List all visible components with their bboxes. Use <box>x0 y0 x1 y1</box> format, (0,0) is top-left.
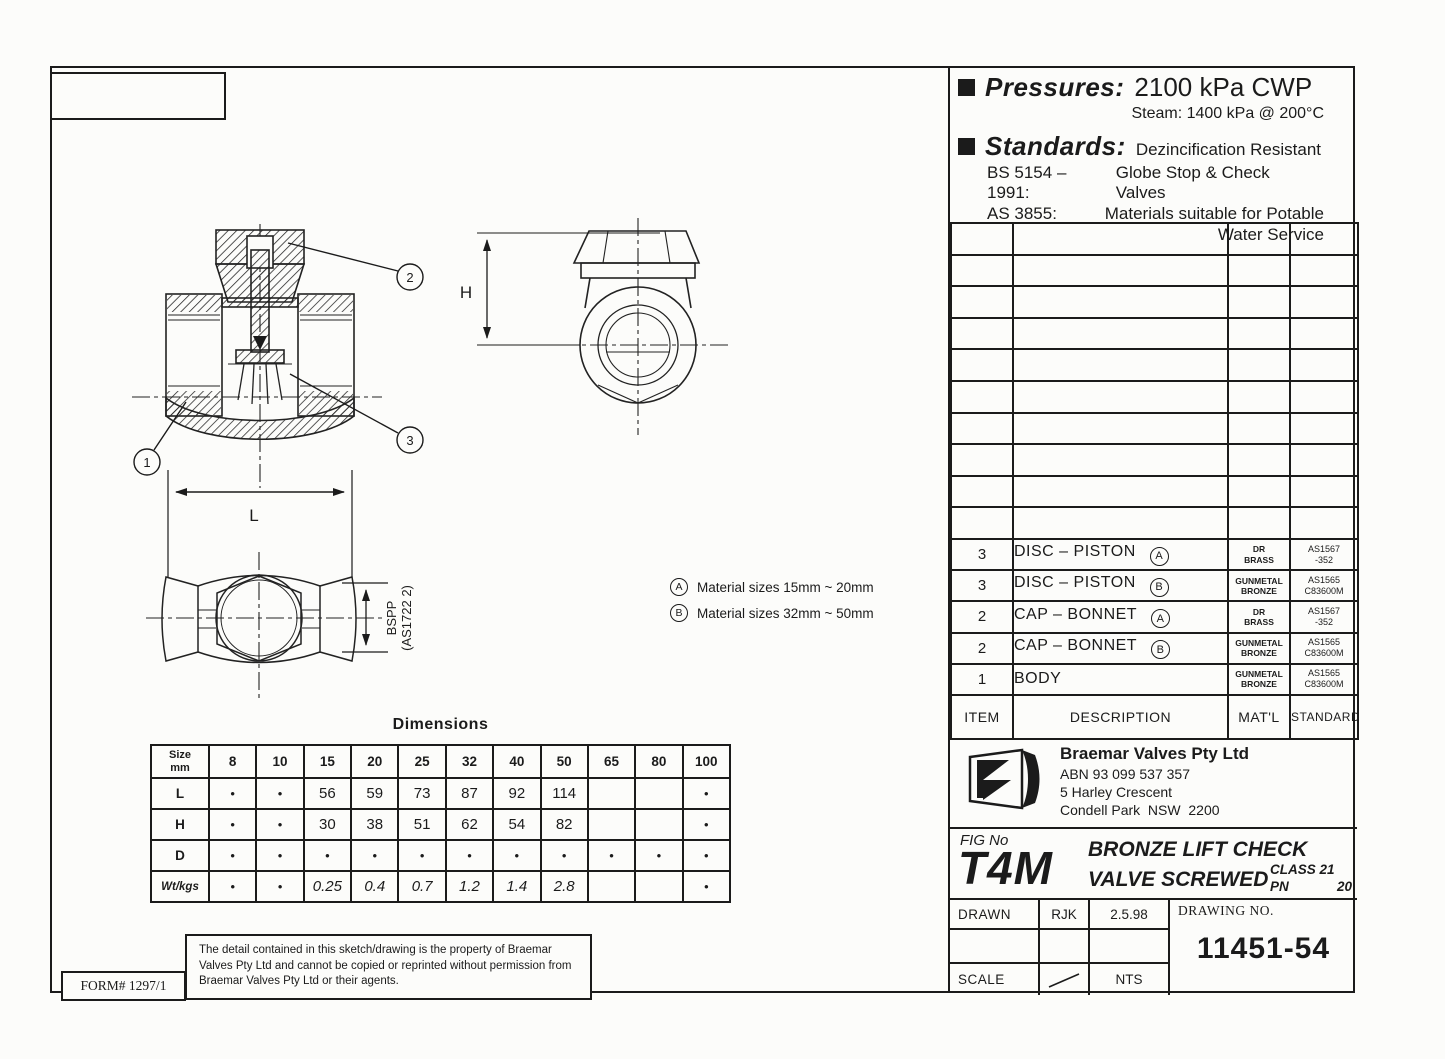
dim-size-header: 100 <box>683 745 730 778</box>
dim-value-cell: 0.7 <box>398 871 445 902</box>
pn-value: 20 <box>1337 879 1352 894</box>
dim-row-label: Wt/kgs <box>151 871 209 902</box>
plan-view <box>146 552 385 702</box>
dimensions-table-head: Sizemm8101520253240506580100 <box>151 745 730 778</box>
material-note-b-text: Material sizes 32mm ~ 50mm <box>697 606 874 621</box>
parts-header-standard: STANDARD <box>1290 695 1358 739</box>
dim-value-cell: • <box>209 871 256 902</box>
dim-row: Wt/kgs••0.250.40.71.21.42.8• <box>151 871 730 902</box>
dim-value-cell: 1.2 <box>446 871 493 902</box>
dim-size-header: 25 <box>398 745 445 778</box>
parts-cell-description: DISC – PISTONB <box>1013 570 1228 601</box>
material-line: DR <box>1229 607 1289 617</box>
dim-size-header: 32 <box>446 745 493 778</box>
parts-empty-cell <box>951 349 1013 381</box>
pressures-label: Pressures: <box>985 72 1124 103</box>
parts-empty-row <box>951 476 1358 508</box>
parts-cell-standard: AS1567-352 <box>1290 539 1358 570</box>
parts-empty-cell <box>1290 507 1358 539</box>
parts-empty-cell <box>1013 413 1228 445</box>
dim-size-header: 80 <box>635 745 682 778</box>
callout-1: 1 <box>143 455 150 470</box>
parts-empty-cell <box>1228 223 1290 255</box>
fig-number: T4M <box>958 841 1053 895</box>
scale-label: SCALE <box>950 964 1040 995</box>
dim-value-cell: 56 <box>304 778 351 809</box>
dim-value-cell: 38 <box>351 809 398 840</box>
parts-empty-cell <box>951 286 1013 318</box>
standard-line: AS1565 <box>1291 668 1357 679</box>
dim-value-cell: • <box>256 871 303 902</box>
parts-empty-cell <box>1290 286 1358 318</box>
parts-empty-cell <box>1013 444 1228 476</box>
drawing-no-label: DRAWING NO. <box>1178 903 1274 919</box>
parts-header-description: DESCRIPTION <box>1013 695 1228 739</box>
dim-value-cell: 114 <box>541 778 588 809</box>
product-title-line2: VALVE SCREWED <box>1088 865 1298 895</box>
standard-line: C83600M <box>1291 648 1357 659</box>
parts-cell-standard: AS1565C83600M <box>1290 664 1358 695</box>
standard-line: -352 <box>1291 555 1357 566</box>
variant-circle-icon: A <box>1151 609 1170 628</box>
circle-b-icon: B <box>670 604 688 622</box>
dim-value-cell: • <box>256 778 303 809</box>
dim-value-cell <box>635 778 682 809</box>
drawn-by: RJK <box>1040 900 1090 930</box>
parts-row: 3DISC – PISTONBGUNMETALBRONZEAS1565C8360… <box>951 570 1358 601</box>
material-line: GUNMETAL <box>1229 669 1289 679</box>
dim-value-cell: 59 <box>351 778 398 809</box>
dim-value-cell: 51 <box>398 809 445 840</box>
dim-H: H <box>460 233 660 345</box>
dim-value-cell: • <box>304 840 351 871</box>
dim-value-cell <box>635 871 682 902</box>
scale-value: NTS <box>1090 964 1170 995</box>
parts-empty-row <box>951 318 1358 350</box>
dim-row-label: H <box>151 809 209 840</box>
standards-value: Dezincification Resistant <box>1136 140 1321 160</box>
empty-cell <box>1090 930 1170 964</box>
parts-row: 2CAP – BONNETADRBRASSAS1567-352 <box>951 601 1358 632</box>
standard-line: -352 <box>1291 617 1357 628</box>
parts-empty-cell <box>1228 286 1290 318</box>
standard-line: AS1567 <box>1291 606 1357 617</box>
parts-cell-standard: AS1567-352 <box>1290 601 1358 632</box>
parts-table-rows: 3DISC – PISTONADRBRASSAS1567-3523DISC – … <box>951 223 1358 695</box>
material-line: BRONZE <box>1229 679 1289 689</box>
thread-standard-label: (AS1722 2) <box>399 585 414 651</box>
company-block: Braemar Valves Pty Ltd ABN 93 099 537 35… <box>950 738 1357 827</box>
parts-empty-row <box>951 349 1358 381</box>
dim-value-cell: 82 <box>541 809 588 840</box>
standard-bs: BS 5154 –1991: Globe Stop & Check Valves <box>987 163 1324 203</box>
dim-value-cell: • <box>256 840 303 871</box>
parts-empty-row <box>951 381 1358 413</box>
parts-empty-cell <box>951 413 1013 445</box>
product-title-line1: BRONZE LIFT CHECK <box>1088 835 1298 865</box>
parts-empty-cell <box>951 507 1013 539</box>
company-address1: 5 Harley Crescent <box>1060 784 1249 800</box>
parts-empty-cell <box>1228 255 1290 287</box>
dim-size-header: 20 <box>351 745 398 778</box>
thread-label: BSPP <box>384 601 399 636</box>
dim-corner-line: mm <box>152 762 208 775</box>
parts-empty-cell <box>1290 223 1358 255</box>
dim-size-header: 50 <box>541 745 588 778</box>
pressures-line: Pressures: 2100 kPa CWP <box>958 72 1324 103</box>
dim-value-cell: 0.25 <box>304 871 351 902</box>
approval-block: DRAWN RJK 2.5.98 DRAWING NO. 11451-54 SC… <box>950 898 1357 993</box>
section-view <box>132 224 382 488</box>
standard-line: AS1565 <box>1291 637 1357 648</box>
material-line: BRONZE <box>1229 648 1289 658</box>
dim-value-cell: 87 <box>446 778 493 809</box>
parts-cell-item: 3 <box>951 539 1013 570</box>
dim-row: H••303851625482• <box>151 809 730 840</box>
dim-row-label: D <box>151 840 209 871</box>
fig-block: FIG No T4M BRONZE LIFT CHECK VALVE SCREW… <box>950 827 1357 898</box>
parts-cell-standard: AS1565C83600M <box>1290 633 1358 664</box>
parts-empty-cell <box>951 223 1013 255</box>
braemar-logo <box>962 747 1044 820</box>
standard-as-desc: Materials suitable for Potable <box>1105 204 1324 224</box>
variant-circle-icon: A <box>1150 547 1169 566</box>
empty-cell <box>1040 930 1090 964</box>
parts-empty-cell <box>951 476 1013 508</box>
right-column: Pressures: 2100 kPa CWP Steam: 1400 kPa … <box>948 66 1355 993</box>
parts-empty-cell <box>1290 476 1358 508</box>
parts-cell-material: GUNMETALBRONZE <box>1228 570 1290 601</box>
standard-bs-desc: Globe Stop & Check Valves <box>1116 163 1324 203</box>
parts-empty-cell <box>1228 507 1290 539</box>
parts-empty-cell <box>951 444 1013 476</box>
parts-row: 3DISC – PISTONADRBRASSAS1567-352 <box>951 539 1358 570</box>
company-name: Braemar Valves Pty Ltd <box>1060 744 1249 764</box>
parts-empty-cell <box>1290 444 1358 476</box>
callout-2: 2 <box>406 270 413 285</box>
parts-cell-description: CAP – BONNETA <box>1013 601 1228 632</box>
dim-row: L••5659738792114• <box>151 778 730 809</box>
dim-value-cell: • <box>256 809 303 840</box>
dim-value-cell: • <box>635 840 682 871</box>
drawing-number: 11451-54 <box>1170 932 1357 966</box>
dim-value-cell: • <box>209 778 256 809</box>
parts-cell-item: 2 <box>951 601 1013 632</box>
parts-empty-row <box>951 444 1358 476</box>
material-note-a-text: Material sizes 15mm ~ 20mm <box>697 580 874 595</box>
dim-L-label: L <box>249 506 258 525</box>
parts-description-text: CAP – BONNET <box>1014 637 1137 654</box>
parts-cell-item: 3 <box>951 570 1013 601</box>
parts-empty-cell <box>951 318 1013 350</box>
dim-corner-cell: Sizemm <box>151 745 209 778</box>
dim-value-cell: • <box>446 840 493 871</box>
disclaimer-box: The detail contained in this sketch/draw… <box>185 934 592 1000</box>
dim-value-cell: • <box>683 871 730 902</box>
standard-line: AS1567 <box>1291 544 1357 555</box>
dim-value-cell: 2.8 <box>541 871 588 902</box>
parts-empty-cell <box>1290 413 1358 445</box>
scale-slash-icon <box>1040 964 1090 995</box>
dim-size-header: 65 <box>588 745 635 778</box>
parts-row: 1BODYGUNMETALBRONZEAS1565C83600M <box>951 664 1358 695</box>
dimensions-title: Dimensions <box>150 716 731 734</box>
dim-value-cell: • <box>588 840 635 871</box>
pressures-value: 2100 kPa CWP <box>1134 72 1312 103</box>
drawing-sheet: 1 2 3 L <box>0 0 1445 1059</box>
standard-as-code: AS 3855: <box>987 204 1057 224</box>
circle-a-icon: A <box>670 578 688 596</box>
material-line: GUNMETAL <box>1229 638 1289 648</box>
parts-empty-row <box>951 255 1358 287</box>
parts-empty-cell <box>1228 349 1290 381</box>
standards-line: Standards: Dezincification Resistant <box>958 131 1324 162</box>
parts-cell-description: DISC – PISTONA <box>1013 539 1228 570</box>
dim-value-cell <box>588 871 635 902</box>
material-line: BRASS <box>1229 555 1289 565</box>
parts-cell-material: DRBRASS <box>1228 539 1290 570</box>
company-abn: ABN 93 099 537 357 <box>1060 766 1249 782</box>
dim-value-cell: 73 <box>398 778 445 809</box>
dim-size-header: 15 <box>304 745 351 778</box>
dim-value-cell: • <box>493 840 540 871</box>
bullet-square-icon <box>958 138 975 155</box>
dim-value-cell: 54 <box>493 809 540 840</box>
parts-empty-cell <box>1013 476 1228 508</box>
bullet-square-icon <box>958 79 975 96</box>
standards-label: Standards: <box>985 131 1126 162</box>
dim-value-cell: • <box>683 840 730 871</box>
parts-description-text: DISC – PISTON <box>1014 574 1136 591</box>
standard-line: AS1565 <box>1291 575 1357 586</box>
parts-header-material: MAT'L <box>1228 695 1290 739</box>
material-line: GUNMETAL <box>1229 576 1289 586</box>
parts-empty-cell <box>1290 318 1358 350</box>
variant-circle-icon: B <box>1150 578 1169 597</box>
dim-value-cell: • <box>209 840 256 871</box>
dim-value-cell: 30 <box>304 809 351 840</box>
end-view <box>560 218 732 435</box>
parts-empty-cell <box>1013 381 1228 413</box>
valve-drawing: 1 2 3 L <box>60 200 940 740</box>
drawing-no-cell: DRAWING NO. 11451-54 <box>1170 900 1357 995</box>
empty-cell <box>950 930 1040 964</box>
parts-empty-cell <box>951 381 1013 413</box>
company-address2: Condell Park NSW 2200 <box>1060 802 1249 818</box>
parts-empty-cell <box>1013 255 1228 287</box>
dim-value-cell: 62 <box>446 809 493 840</box>
parts-empty-cell <box>1290 349 1358 381</box>
dim-value-cell <box>588 778 635 809</box>
parts-description-text: DISC – PISTON <box>1014 543 1136 560</box>
top-left-empty-box <box>50 72 226 120</box>
dim-size-header: 40 <box>493 745 540 778</box>
parts-empty-cell <box>1228 476 1290 508</box>
dim-value-cell: • <box>683 778 730 809</box>
material-line: BRASS <box>1229 617 1289 627</box>
parts-table: 3DISC – PISTONADRBRASSAS1567-3523DISC – … <box>950 222 1359 740</box>
parts-empty-cell <box>1290 381 1358 413</box>
parts-empty-cell <box>1228 444 1290 476</box>
material-line: DR <box>1229 544 1289 554</box>
dim-value-cell <box>588 809 635 840</box>
parts-empty-cell <box>1013 507 1228 539</box>
parts-empty-cell <box>1013 286 1228 318</box>
dim-value-cell: • <box>209 809 256 840</box>
dim-value-cell: 92 <box>493 778 540 809</box>
parts-cell-material: DRBRASS <box>1228 601 1290 632</box>
parts-cell-item: 2 <box>951 633 1013 664</box>
parts-cell-description: BODY <box>1013 664 1228 695</box>
parts-empty-row <box>951 223 1358 255</box>
parts-cell-material: GUNMETALBRONZE <box>1228 664 1290 695</box>
form-number: FORM# 1297/1 <box>61 971 186 1001</box>
dim-value-cell: 0.4 <box>351 871 398 902</box>
dim-value-cell: 1.4 <box>493 871 540 902</box>
material-line: BRONZE <box>1229 586 1289 596</box>
parts-cell-standard: AS1565C83600M <box>1290 570 1358 601</box>
variant-circle-icon: B <box>1151 640 1170 659</box>
parts-empty-row <box>951 286 1358 318</box>
material-note-b: B Material sizes 32mm ~ 50mm <box>670 604 874 622</box>
dim-header-row: Sizemm8101520253240506580100 <box>151 745 730 778</box>
material-note-a: A Material sizes 15mm ~ 20mm <box>670 578 874 596</box>
parts-row: 2CAP – BONNETBGUNMETALBRONZEAS1565C83600… <box>951 633 1358 664</box>
parts-description-text: CAP – BONNET <box>1014 606 1137 623</box>
callout-3: 3 <box>406 433 413 448</box>
drawn-date: 2.5.98 <box>1090 900 1170 930</box>
parts-header-item: ITEM <box>951 695 1013 739</box>
standard-line: C83600M <box>1291 586 1357 597</box>
standard-bs-code: BS 5154 –1991: <box>987 163 1109 203</box>
dim-value-cell <box>635 809 682 840</box>
parts-description-text: BODY <box>1014 670 1061 687</box>
dim-value-cell: • <box>541 840 588 871</box>
parts-empty-cell <box>951 255 1013 287</box>
drawn-label: DRAWN <box>950 900 1040 930</box>
dimensions-table-body: L••5659738792114•H••303851625482•D••••••… <box>151 778 730 902</box>
steam-rating: Steam: 1400 kPa @ 200°C <box>958 105 1324 123</box>
parts-empty-cell <box>1228 413 1290 445</box>
standard-as: AS 3855: Materials suitable for Potable <box>987 204 1324 224</box>
parts-empty-cell <box>1013 318 1228 350</box>
dim-H-label: H <box>460 283 472 302</box>
dim-value-cell: • <box>683 809 730 840</box>
dim-value-cell: • <box>351 840 398 871</box>
dim-row: D••••••••••• <box>151 840 730 871</box>
standard-line: C83600M <box>1291 679 1357 690</box>
parts-empty-row <box>951 507 1358 539</box>
parts-cell-item: 1 <box>951 664 1013 695</box>
parts-table-header-row: ITEM DESCRIPTION MAT'L STANDARD <box>951 695 1358 739</box>
class-rating: CLASS 21 <box>1270 862 1352 877</box>
parts-empty-row <box>951 413 1358 445</box>
dim-value-cell: • <box>398 840 445 871</box>
parts-empty-cell <box>1228 381 1290 413</box>
parts-cell-description: CAP – BONNETB <box>1013 633 1228 664</box>
dim-corner-line: Size <box>152 749 208 762</box>
dim-size-header: 10 <box>256 745 303 778</box>
dim-row-label: L <box>151 778 209 809</box>
parts-empty-cell <box>1013 349 1228 381</box>
parts-empty-cell <box>1228 318 1290 350</box>
specs-block: Pressures: 2100 kPa CWP Steam: 1400 kPa … <box>950 66 1357 222</box>
parts-cell-material: GUNMETALBRONZE <box>1228 633 1290 664</box>
dimensions-table: Sizemm8101520253240506580100 L••56597387… <box>150 744 731 903</box>
parts-empty-cell <box>1290 255 1358 287</box>
pn-label: PN <box>1270 879 1289 894</box>
parts-empty-cell <box>1013 223 1228 255</box>
dim-size-header: 8 <box>209 745 256 778</box>
